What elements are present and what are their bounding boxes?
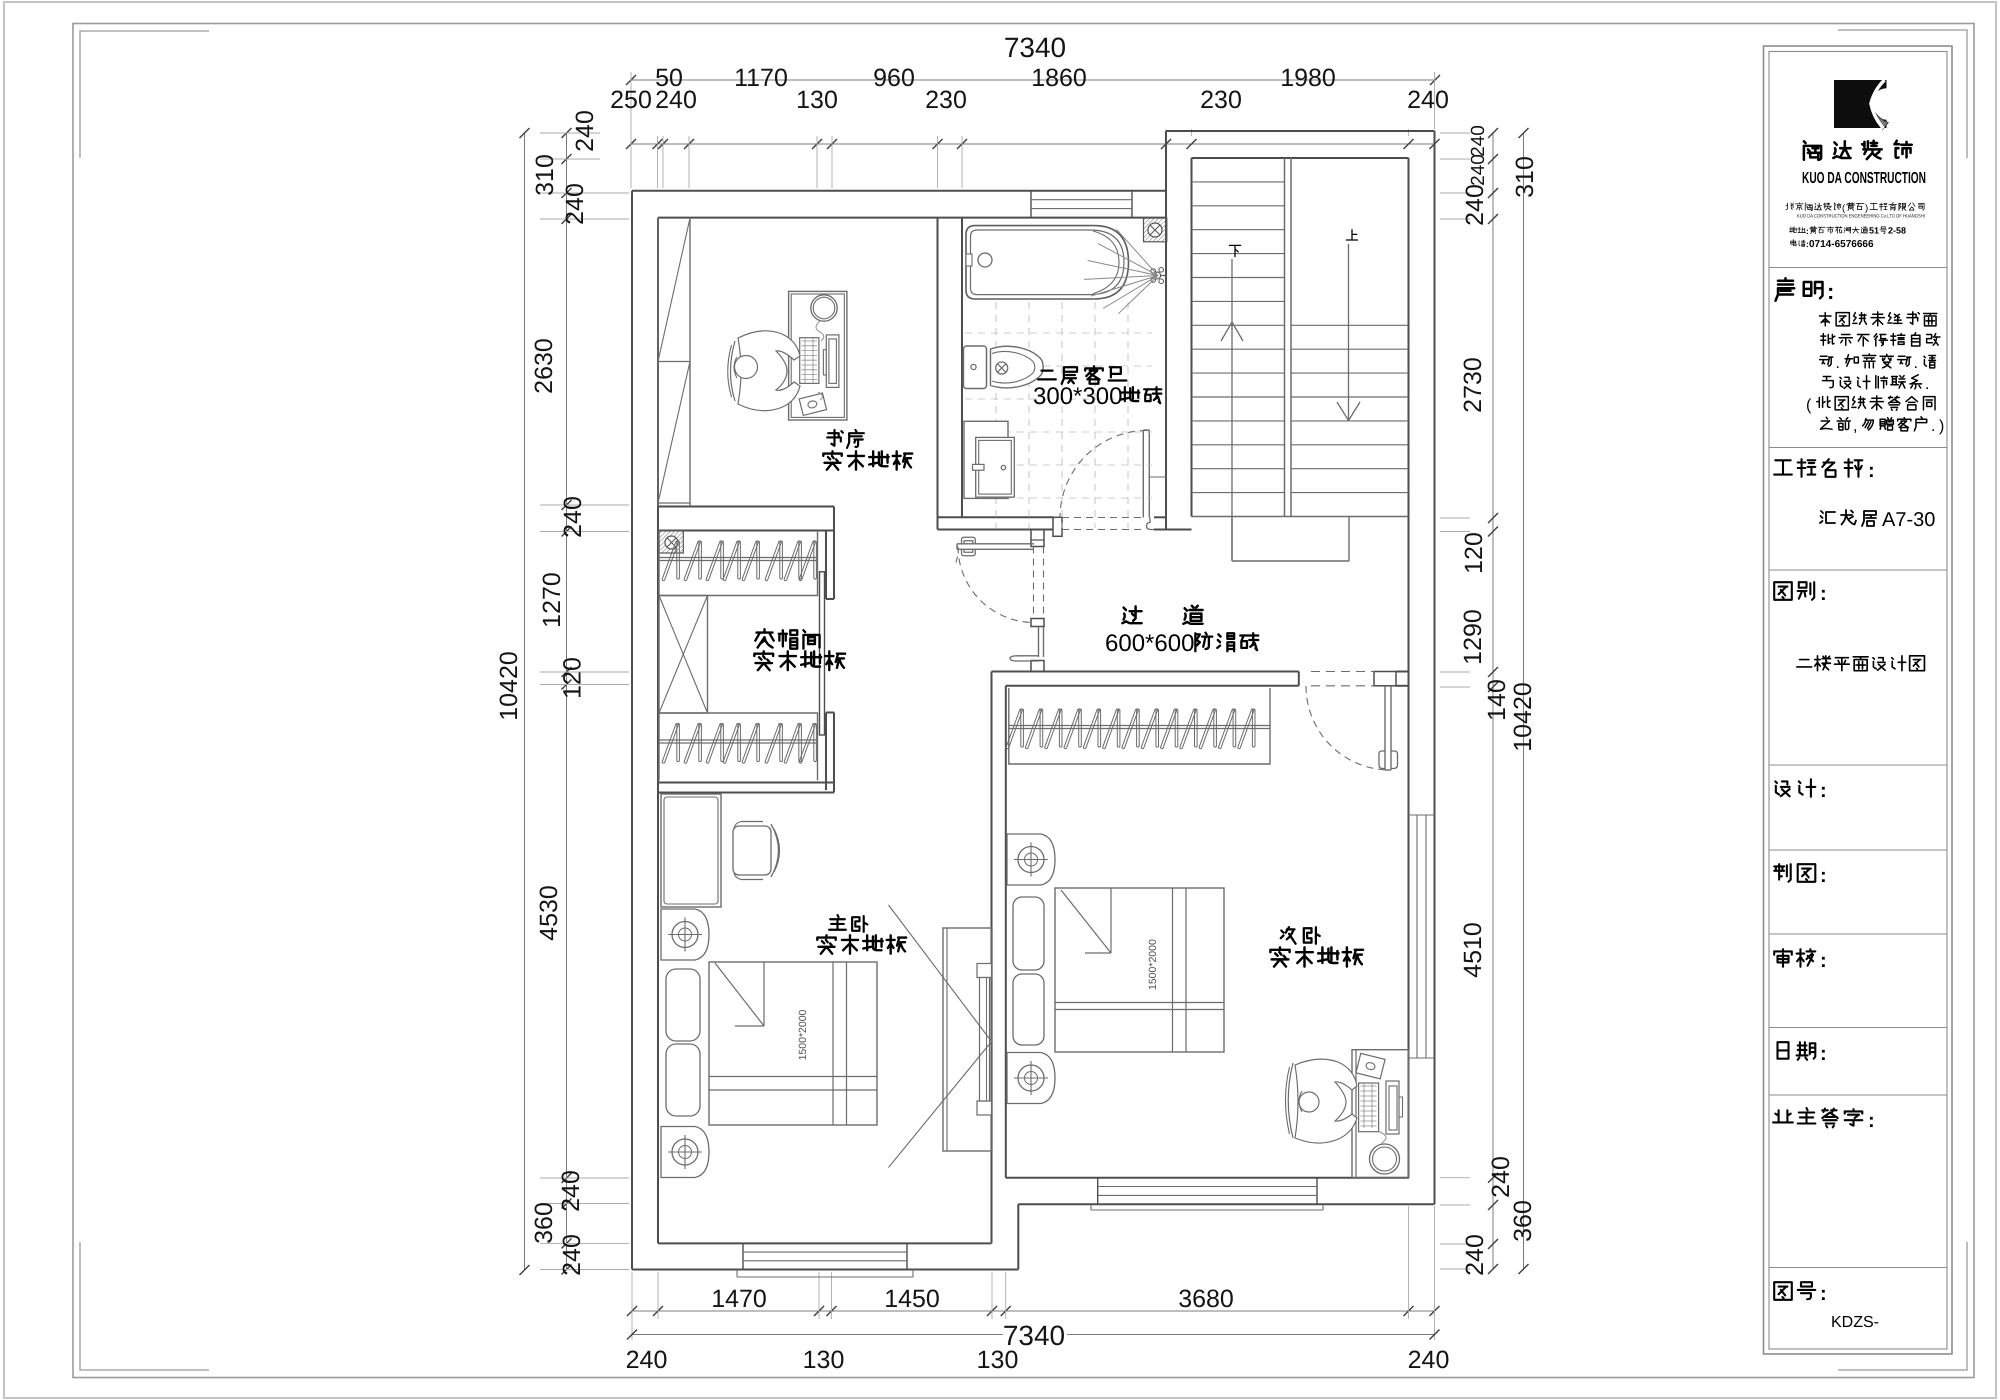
svg-text:300*300: 300*300 <box>1033 383 1122 410</box>
svg-text:240: 240 <box>571 110 599 152</box>
svg-text:.: . <box>1836 355 1840 372</box>
svg-text:1470: 1470 <box>711 1285 767 1313</box>
svg-text:240: 240 <box>557 1170 585 1212</box>
svg-text:.: . <box>1931 418 1935 435</box>
svg-text:4530: 4530 <box>535 885 563 941</box>
svg-text:310: 310 <box>531 154 559 196</box>
svg-text:360: 360 <box>1509 1200 1537 1242</box>
svg-text:KDZS-: KDZS- <box>1831 1314 1879 1331</box>
svg-text::: : <box>1827 279 1834 304</box>
svg-text:2730: 2730 <box>1459 357 1487 413</box>
svg-text:240: 240 <box>559 496 587 538</box>
svg-text:310: 310 <box>1511 156 1539 198</box>
svg-text:): ) <box>1939 418 1944 435</box>
svg-text::: : <box>1868 1110 1875 1132</box>
svg-text:250: 250 <box>610 86 652 114</box>
svg-text:240: 240 <box>1487 1156 1515 1198</box>
svg-text:130: 130 <box>796 86 838 114</box>
svg-text:1980: 1980 <box>1280 64 1336 92</box>
svg-text:130: 130 <box>977 1346 1019 1374</box>
svg-text:KUO DA CONSTRUCTION ENGENEERIN: KUO DA CONSTRUCTION ENGENEERING Co.LTD O… <box>1797 214 1925 220</box>
svg-text:.: . <box>1925 376 1929 393</box>
svg-text:240: 240 <box>626 1346 668 1374</box>
svg-text:A7-30: A7-30 <box>1882 509 1935 531</box>
svg-text::: : <box>1868 460 1875 482</box>
svg-text::: : <box>1820 583 1827 605</box>
svg-text::: : <box>1820 1043 1827 1065</box>
svg-text:140: 140 <box>1483 679 1511 721</box>
svg-text:1500*2000: 1500*2000 <box>797 1009 809 1060</box>
svg-text:2-58: 2-58 <box>1888 226 1906 236</box>
svg-text:960: 960 <box>873 64 915 92</box>
svg-text:360: 360 <box>530 1202 558 1244</box>
svg-text:240: 240 <box>1468 154 1489 186</box>
svg-text:4510: 4510 <box>1459 922 1487 978</box>
svg-text:3680: 3680 <box>1178 1285 1234 1313</box>
svg-text::: : <box>1820 780 1827 802</box>
svg-text:240: 240 <box>558 1234 586 1276</box>
svg-text:10420: 10420 <box>495 651 523 721</box>
svg-text:240: 240 <box>655 86 697 114</box>
svg-text:10420: 10420 <box>1509 682 1537 752</box>
svg-text:7340: 7340 <box>1004 32 1066 63</box>
svg-text:1170: 1170 <box>734 64 788 92</box>
svg-text:(: ( <box>1806 397 1812 414</box>
svg-text:120: 120 <box>1460 532 1488 574</box>
svg-text:1860: 1860 <box>1031 64 1087 92</box>
svg-text:240: 240 <box>1468 125 1489 157</box>
svg-text:240: 240 <box>1408 1346 1450 1374</box>
svg-text:130: 130 <box>803 1346 845 1374</box>
svg-text:240: 240 <box>561 183 589 225</box>
svg-text:1270: 1270 <box>538 572 566 628</box>
svg-text:230: 230 <box>1200 86 1242 114</box>
svg-text:): ) <box>1865 203 1868 214</box>
svg-text:,: , <box>1853 418 1857 435</box>
svg-text:1500*2000: 1500*2000 <box>1147 939 1159 990</box>
svg-text::: : <box>1820 865 1827 887</box>
svg-text:0714-6576666: 0714-6576666 <box>1809 239 1874 250</box>
svg-text:2630: 2630 <box>530 338 558 394</box>
svg-text:120: 120 <box>559 657 587 699</box>
svg-text:1290: 1290 <box>1459 609 1487 665</box>
svg-text:240: 240 <box>1407 86 1449 114</box>
svg-text::: : <box>1806 226 1809 236</box>
svg-text:51: 51 <box>1869 226 1879 236</box>
svg-text:KUO DA CONSTRUCTION: KUO DA CONSTRUCTION <box>1802 170 1926 187</box>
svg-text:1450: 1450 <box>884 1285 940 1313</box>
svg-text::: : <box>1820 950 1827 972</box>
svg-text:240: 240 <box>1461 184 1489 226</box>
svg-text:.: . <box>1914 355 1918 372</box>
svg-text:230: 230 <box>925 86 967 114</box>
svg-text::: : <box>1820 1283 1827 1305</box>
svg-text:600*600: 600*600 <box>1105 630 1194 657</box>
svg-text:240: 240 <box>1461 1234 1489 1276</box>
